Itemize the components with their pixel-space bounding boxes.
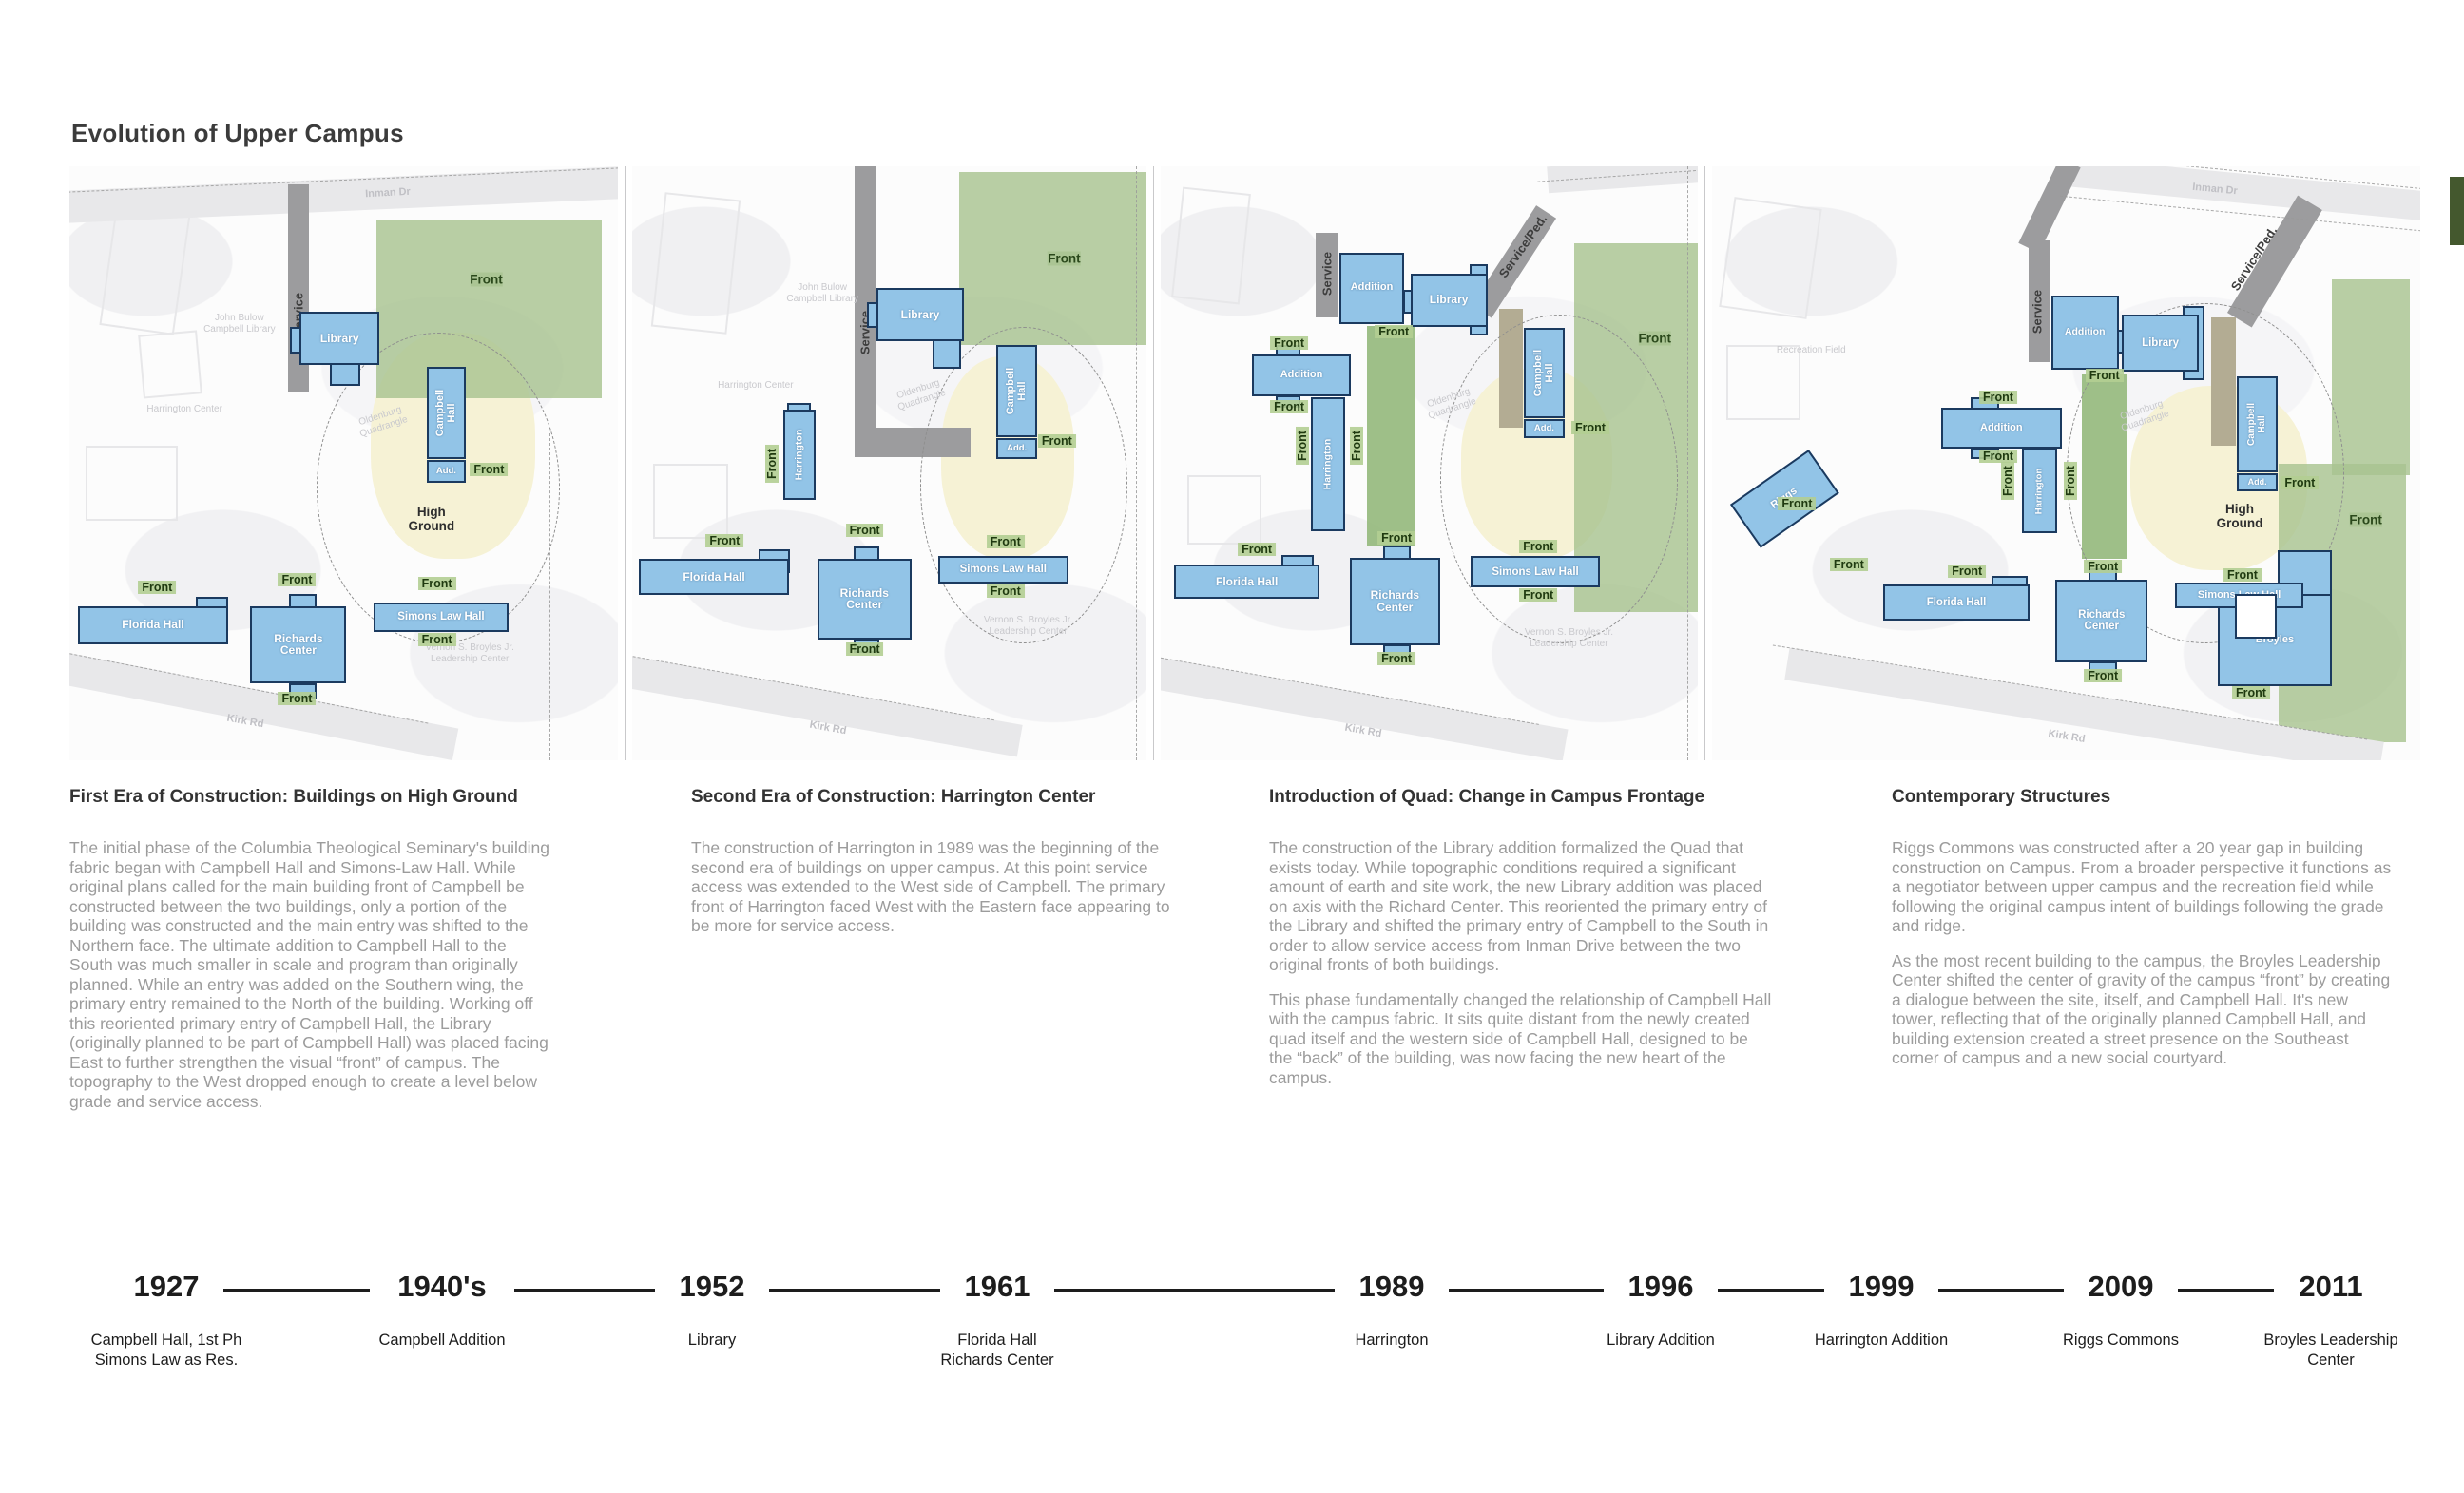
section-heading: Contemporary Structures: [1892, 787, 2396, 808]
front-label: Front: [1377, 531, 1415, 545]
building-addition: Addition: [1339, 253, 1404, 324]
building-label: Addition: [2065, 327, 2106, 337]
section-heading: First Era of Construction: Buildings on …: [69, 787, 554, 808]
front-label: Front: [1270, 400, 1308, 413]
map-text-recreation-field: Recreation Field: [1777, 345, 1846, 356]
building-label: Simons Law Hall: [397, 611, 484, 622]
building-harrington: Harrington: [783, 410, 816, 500]
building-florida-hall: Florida Hall: [639, 559, 789, 596]
building-label: Addition: [1980, 423, 2023, 434]
road-faint: [1161, 655, 1569, 760]
building-campbell-hall: Campbell Hall: [1524, 328, 1565, 418]
front-label: Front: [1270, 336, 1308, 350]
map-text-front: Front: [2349, 512, 2382, 526]
building-label: Addition: [1280, 370, 1323, 381]
section-introduction-of-quad-change-in: Introduction of Quad: Change in Campus F…: [1269, 787, 1773, 1102]
timeline-label-1961: Florida Hall Richards Center: [883, 1330, 1111, 1370]
building-label: Richards Center: [274, 633, 322, 657]
timeline-line: [514, 1289, 655, 1292]
building-part: [2235, 594, 2278, 639]
building-label: Richards Center: [2078, 609, 2125, 632]
building-label: Campbell Hall: [2247, 403, 2267, 446]
building-label: Richards Center: [840, 587, 889, 611]
timeline-line: [1054, 1289, 1335, 1292]
timeline-year-1999: 1999: [1849, 1270, 1915, 1304]
building-simons-law-hall: Simons Law Hall: [1471, 556, 1600, 587]
building-library: Library: [1411, 274, 1488, 327]
side-tab: [2450, 177, 2464, 245]
front-label: Front: [1979, 391, 2017, 404]
building-part: [330, 362, 360, 386]
front-label: Front: [470, 463, 508, 476]
building-label: Simons Law Hall: [960, 564, 1047, 575]
timeline-label-1999: Harrington Addition: [1767, 1330, 1995, 1350]
timeline-line: [223, 1289, 370, 1292]
timeline-year-1940-s: 1940's: [397, 1270, 487, 1304]
section-paragraph: This phase fundamentally changed the rel…: [1269, 990, 1773, 1088]
front-label: Front: [765, 445, 779, 483]
building-richards-center: Richards Center: [2055, 580, 2147, 662]
building-florida-hall: Florida Hall: [1174, 565, 1319, 599]
section-paragraph: The construction of Harrington in 1989 w…: [691, 838, 1176, 936]
building-add: Add.: [1524, 419, 1565, 438]
building-richards-center: Richards Center: [818, 559, 912, 641]
front-label: Front: [1519, 540, 1557, 553]
building-label: Add.: [1534, 424, 1554, 433]
map-text-john-bulow-campbell-library: John Bulow Campbell Library: [786, 282, 858, 305]
road-label-service-ped: Service/Ped.: [1496, 212, 1550, 280]
front-label: Front: [138, 581, 176, 594]
road-faint: [632, 654, 1023, 757]
building-label: Florida Hall: [683, 571, 744, 584]
building-campbell-hall: Campbell Hall: [996, 345, 1037, 438]
building-harrington: Harrington: [1311, 397, 1345, 531]
building-addition: Addition: [1941, 408, 2062, 449]
maps-row: ServiceLibraryCampbell HallAdd.Florida H…: [69, 166, 2420, 760]
building-label: Add.: [1007, 444, 1027, 453]
front-label: Front: [1375, 325, 1413, 338]
map-text-vernon-s-broyles-jr-leadership-center: Vernon S. Broyles Jr. Leadership Center: [1525, 627, 1613, 650]
page: { "page": {"title": "Evolution of Upper …: [0, 0, 2464, 1493]
building-label: Library: [901, 309, 940, 321]
map-text-kirk-rd: Kirk Rd: [2047, 728, 2086, 745]
building-label: Library: [1430, 294, 1469, 306]
front-label: Front: [278, 692, 316, 705]
section-heading: Second Era of Construction: Harrington C…: [691, 787, 1176, 808]
building-label: Add.: [2248, 478, 2267, 487]
map-ghost-shape: [651, 192, 741, 334]
front-label: Front: [2064, 462, 2077, 500]
timeline-line: [769, 1289, 940, 1292]
building-simons-law-hall: Simons Law Hall: [938, 556, 1068, 584]
front-label: Front: [987, 584, 1025, 598]
map-ghost-shape: [653, 464, 729, 539]
section-second-era-of-construction-har: Second Era of Construction: Harrington C…: [691, 787, 1176, 951]
panel-divider: [1704, 166, 1705, 760]
front-label: Front: [2086, 369, 2124, 382]
building-label: Harrington: [794, 430, 804, 481]
front-label: Front: [987, 535, 1025, 548]
front-label: Front: [2001, 462, 2014, 500]
map-text-front: Front: [1048, 251, 1081, 265]
front-label: Front: [1238, 543, 1276, 556]
map-text-front: Front: [1639, 332, 1672, 346]
map-panel-second-era: ServiceLibraryCampbell HallAdd.Harringto…: [632, 166, 1146, 760]
map-text-harrington-center: Harrington Center: [146, 404, 221, 415]
building-campbell-hall: Campbell Hall: [2237, 376, 2278, 472]
building-campbell-hall: Campbell Hall: [427, 367, 465, 458]
road-faint: [69, 166, 618, 223]
timeline-line: [1938, 1289, 2064, 1292]
building-add: Add.: [2237, 473, 2278, 491]
map-text-high-ground: High Ground: [2217, 503, 2263, 531]
timeline-line: [2178, 1289, 2274, 1292]
map-text-front: Front: [470, 272, 503, 286]
front-label: Front: [2084, 669, 2122, 682]
map-ghost-shape: [138, 330, 202, 398]
timeline-label-1940-s: Campbell Addition: [328, 1330, 556, 1350]
section-first-era-of-construction-buil: First Era of Construction: Buildings on …: [69, 787, 554, 1126]
building-library: Library: [2122, 315, 2198, 372]
front-label: Front: [278, 573, 316, 586]
map-text-harrington-center: Harrington Center: [718, 380, 793, 392]
front-label: Front: [1519, 588, 1557, 602]
building-label: Harrington: [1323, 439, 1334, 490]
map-text-john-bulow-campbell-library: John Bulow Campbell Library: [203, 313, 276, 335]
front-label: Front: [2281, 476, 2319, 489]
building-addition: Addition: [2051, 296, 2119, 370]
timeline-year-1989: 1989: [1359, 1270, 1425, 1304]
road-label-service: Service: [2030, 290, 2044, 334]
front-label: Front: [1571, 421, 1609, 434]
building-label: Addition: [1351, 282, 1394, 294]
timeline-label-2009: Riggs Commons: [2007, 1330, 2235, 1350]
front-label: Front: [2232, 686, 2270, 699]
building-harrington: Harrington: [2022, 449, 2057, 533]
section-paragraph: The initial phase of the Columbia Theolo…: [69, 838, 554, 1111]
building-label: Library: [2142, 337, 2179, 349]
section-contemporary-structures: Contemporary StructuresRiggs Commons was…: [1892, 787, 2396, 1083]
building-richards-center: Richards Center: [250, 606, 346, 683]
building-label: Campbell Hall: [435, 390, 457, 437]
front-label: Front: [1830, 558, 1868, 571]
boundary-dash-line: [1136, 166, 1137, 760]
timeline-label-1989: Harrington: [1278, 1330, 1506, 1350]
front-label: Front: [1296, 427, 1309, 465]
front-label: Front: [418, 633, 456, 646]
building-richards-center: Richards Center: [1350, 558, 1440, 645]
building-label: Add.: [436, 467, 456, 476]
front-label: Front: [1778, 497, 1816, 510]
map-ghost-shape: [1719, 197, 1822, 318]
building-florida-hall: Florida Hall: [78, 606, 229, 644]
road-gray: [2227, 196, 2322, 328]
front-label: Front: [418, 577, 456, 590]
timeline-line: [1449, 1289, 1604, 1292]
map-ghost-shape: [86, 446, 177, 521]
timeline-year-2011: 2011: [2299, 1270, 2362, 1304]
building-add: Add.: [427, 460, 465, 483]
quad-green-strip: [1367, 326, 1415, 546]
front-label: Front: [846, 524, 884, 537]
building-label: Library: [320, 333, 359, 345]
front-green-area: [2332, 279, 2410, 475]
map-ghost-shape: [1171, 187, 1251, 304]
front-label: Front: [1350, 427, 1363, 465]
building-simons-law-hall: Simons Law Hall: [374, 603, 508, 632]
map-panel-contemporary: ServiceService/Ped.AdditionLibraryCampbe…: [1712, 166, 2420, 760]
timeline-year-2009: 2009: [2089, 1270, 2154, 1304]
building-label: Campbell Hall: [1006, 367, 1028, 414]
building-label: Campbell Hall: [1533, 350, 1555, 397]
panel-divider: [625, 166, 626, 760]
building-label: Richards Center: [1371, 589, 1419, 613]
map-panel-first-era: ServiceLibraryCampbell HallAdd.Florida H…: [69, 166, 618, 760]
map-text-high-ground: High Ground: [408, 506, 454, 534]
front-label: Front: [2084, 560, 2122, 573]
front-label: Front: [1948, 565, 1986, 578]
section-paragraph: The construction of the Library addition…: [1269, 838, 1773, 975]
section-heading: Introduction of Quad: Change in Campus F…: [1269, 787, 1773, 808]
building-florida-hall: Florida Hall: [1883, 584, 2029, 621]
building-label: Simons Law Hall: [1492, 566, 1578, 578]
timeline-label-1952: Library: [598, 1330, 826, 1350]
map-text-vernon-s-broyles-jr-leadership-center: Vernon S. Broyles Jr. Leadership Center: [984, 615, 1072, 638]
front-label: Front: [705, 534, 743, 547]
road-faint: [2066, 166, 2420, 222]
building-library: Library: [876, 288, 964, 341]
building-label: Florida Hall: [122, 619, 183, 631]
road-label-service: Service: [1319, 251, 1334, 295]
timeline-year-1952: 1952: [680, 1270, 745, 1304]
map-ghost-shape: [1187, 475, 1261, 545]
front-label: Front: [846, 642, 884, 656]
timeline-year-1927: 1927: [134, 1270, 200, 1304]
front-label: Front: [1377, 652, 1415, 665]
timeline-label-2011: Broyles Leadership Center: [2217, 1330, 2445, 1370]
section-paragraph: As the most recent building to the campu…: [1892, 951, 2396, 1068]
building-label: Harrington: [2035, 468, 2045, 514]
building-add: Add.: [996, 438, 1037, 458]
building-library: Library: [299, 312, 379, 365]
timeline-year-1961: 1961: [965, 1270, 1030, 1304]
boundary-dash-line: [1687, 166, 1688, 760]
timeline-year-1996: 1996: [1628, 1270, 1694, 1304]
building-label: Florida Hall: [1927, 597, 1987, 608]
section-paragraph: Riggs Commons was constructed after a 20…: [1892, 838, 2396, 936]
front-label: Front: [2223, 568, 2262, 582]
map-ghost-shape: [100, 203, 191, 335]
front-label: Front: [1979, 450, 2017, 463]
building-addition: Addition: [1252, 354, 1351, 396]
panel-divider: [1153, 166, 1154, 760]
map-panel-quad-introduction: ServiceService/Ped.AdditionLibraryCampbe…: [1161, 166, 1698, 760]
timeline-label-1996: Library Addition: [1547, 1330, 1775, 1350]
page-title: Evolution of Upper Campus: [71, 119, 404, 148]
front-label: Front: [1038, 434, 1076, 448]
timeline-label-1927: Campbell Hall, 1st Ph Simons Law as Res.: [52, 1330, 280, 1370]
building-part: [933, 338, 961, 368]
building-label: Florida Hall: [1216, 576, 1278, 588]
timeline-line: [1718, 1289, 1824, 1292]
